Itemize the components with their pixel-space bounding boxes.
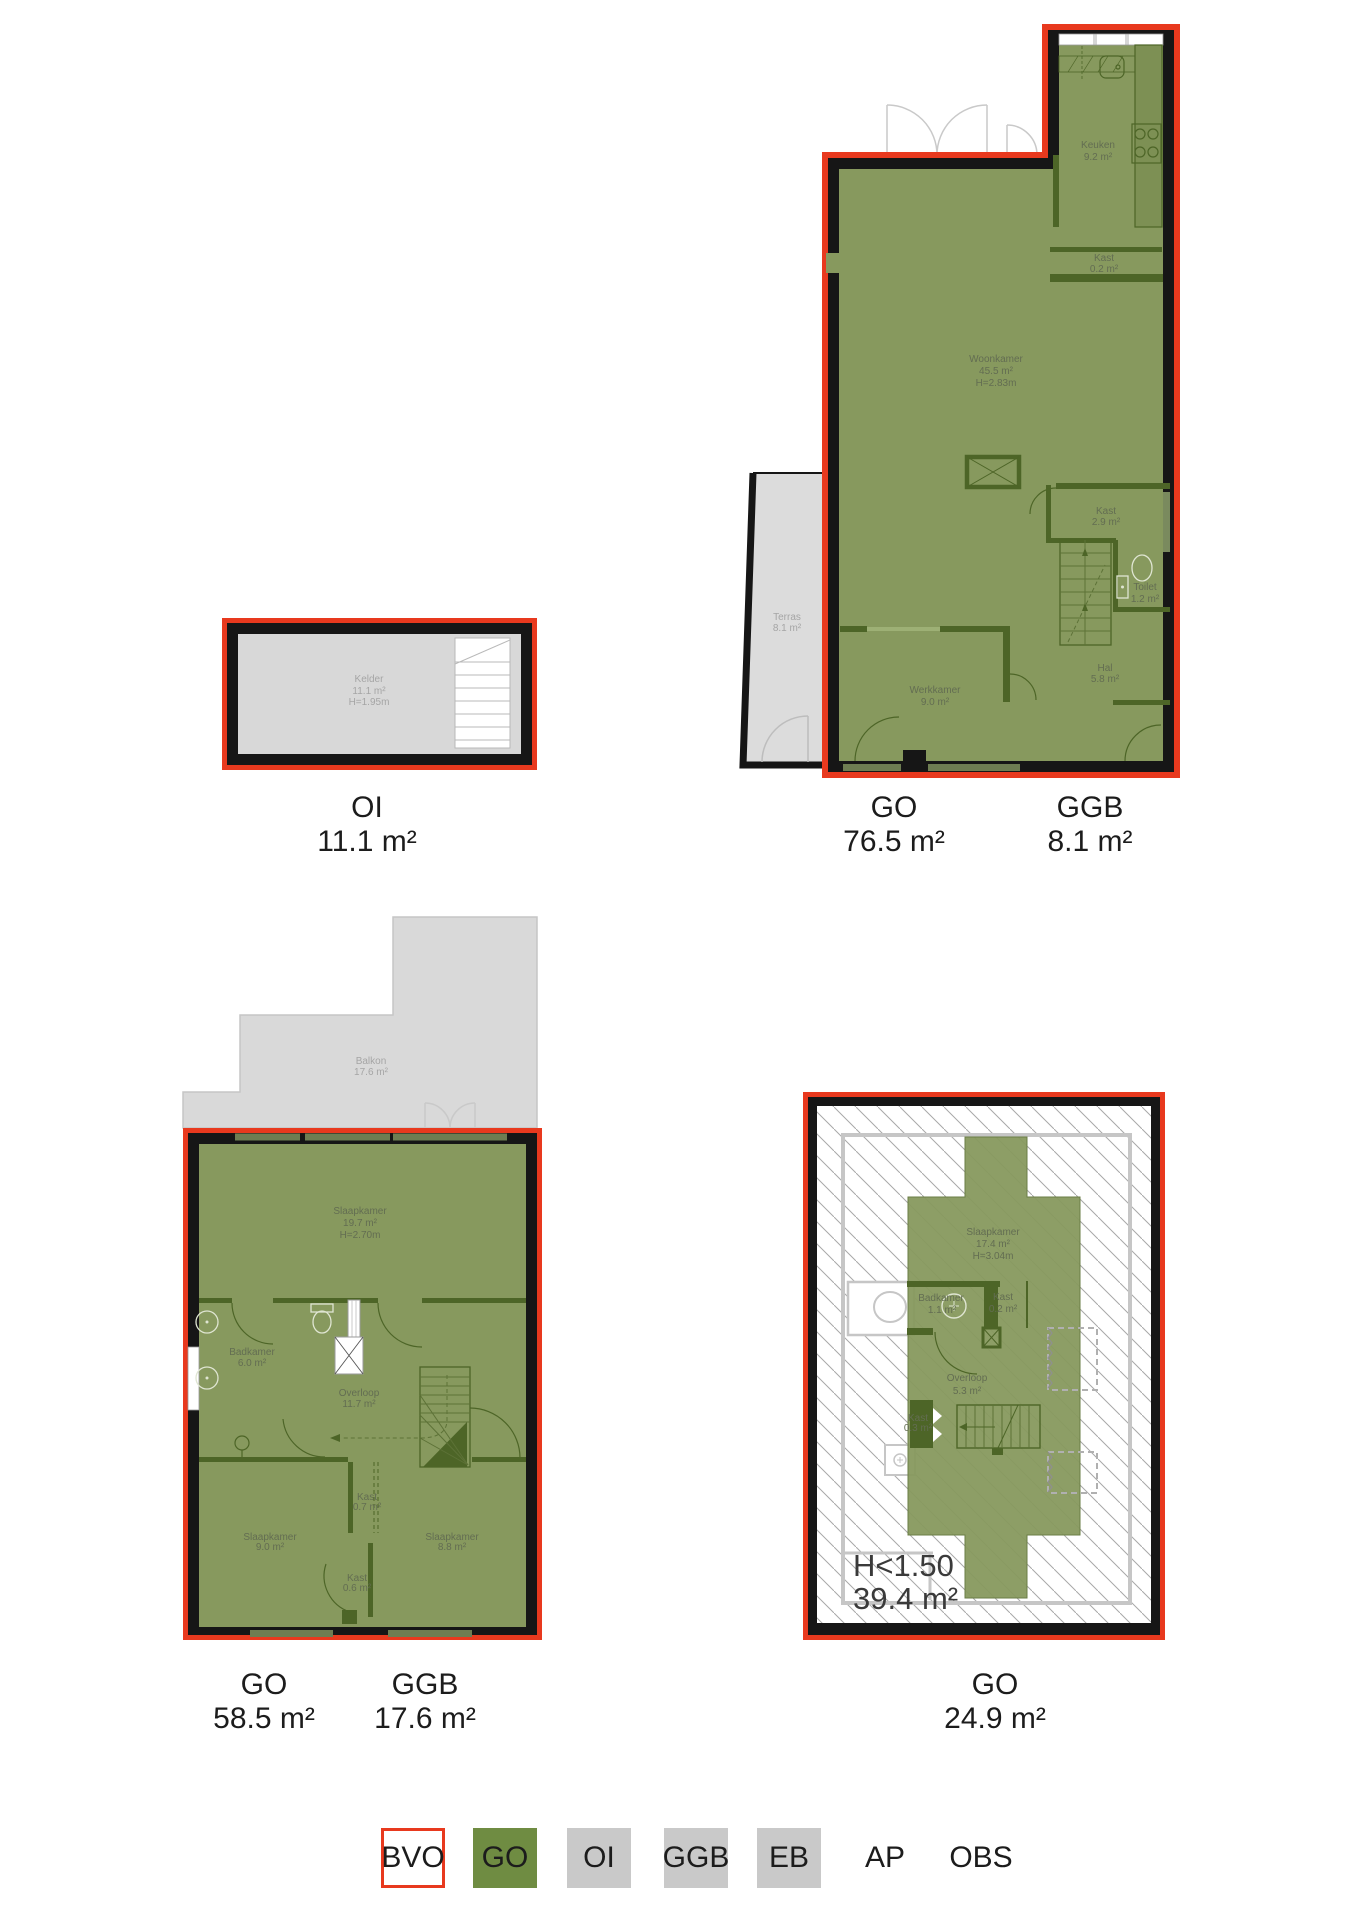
kelder-total-code: OI — [222, 791, 512, 825]
room-kast-klein-area: 0.2 m² — [989, 1304, 1018, 1315]
top-windows — [235, 1134, 507, 1141]
total-code: GO — [814, 791, 974, 825]
room-badkamer-name: Badkamer — [918, 1293, 964, 1304]
balkon-area: Balkon 17.6 m² — [183, 917, 537, 1128]
total-value: 24.9 m² — [915, 1702, 1075, 1736]
room-slaapkamer-rechts-area: 8.8 m² — [438, 1542, 467, 1553]
bottom-windows — [843, 764, 1020, 771]
plan-begane-grond: Terras 8.1 m² — [738, 20, 1186, 782]
room-kast-area: 2.9 m² — [1092, 517, 1121, 528]
room-kast-name: Kast — [1096, 506, 1116, 517]
room-kelder-name: Kelder — [355, 674, 385, 685]
legend-item-obs: OBS — [941, 1828, 1021, 1888]
room-slaapkamer-links-area: 9.0 m² — [256, 1542, 285, 1553]
room-kast-boven-area: 0.7 m² — [353, 1502, 382, 1513]
total-code: GGB — [1010, 791, 1170, 825]
legend-item-eb: EB — [757, 1828, 821, 1888]
legend-item-oi: OI — [567, 1828, 631, 1888]
entrance-door-arcs — [887, 105, 1037, 155]
total-value: 76.5 m² — [814, 825, 974, 859]
verdieping-total-go: GO 58.5 m² — [184, 1668, 344, 1736]
keuken-wall — [1053, 155, 1059, 227]
floorplan-report-page: Kelder 11.1 m² H=1.95m OI 11.1 m² Terras… — [0, 0, 1358, 1920]
total-code: GO — [184, 1668, 344, 1702]
room-balkon-area: 17.6 m² — [354, 1067, 389, 1078]
legend-item-ggb: GGB — [664, 1828, 728, 1888]
room-woonkamer-height: H=2.83m — [976, 378, 1017, 389]
room-badkamer-area: 6.0 m² — [238, 1358, 267, 1369]
room-overloop-area: 5.3 m² — [953, 1386, 982, 1397]
room-slaapkamer-area: 17.4 m² — [976, 1239, 1011, 1250]
total-value: 8.1 m² — [1010, 825, 1170, 859]
keuken-window — [1059, 34, 1163, 45]
room-badkamer-area: 1.1 m² — [928, 1305, 957, 1316]
room-werkkamer-name: Werkkamer — [910, 685, 962, 696]
room-slaapkamer-groot-name: Slaapkamer — [333, 1206, 387, 1217]
total-value: 58.5 m² — [184, 1702, 344, 1736]
room-toilet-area: 1.2 m² — [1131, 594, 1160, 605]
room-keuken-area: 9.2 m² — [1084, 152, 1113, 163]
kast-keuken-wall-top — [1050, 247, 1162, 252]
bath-box — [848, 1282, 914, 1335]
room-badkamer-name: Badkamer — [229, 1347, 275, 1358]
zolder-total-go: GO 24.9 m² — [915, 1668, 1075, 1736]
room-kast-area: 0.3 m² — [904, 1423, 933, 1434]
kelder-total-label: OI 11.1 m² — [222, 791, 512, 859]
left-window — [188, 1347, 199, 1410]
verdieping-total-ggb: GGB 17.6 m² — [345, 1668, 505, 1736]
begane-grond-total-go: GO 76.5 m² — [814, 791, 974, 859]
room-overloop-area: 11.7 m² — [342, 1399, 376, 1410]
room-hal-name: Hal — [1097, 663, 1112, 674]
kelder-total-value: 11.1 m² — [222, 825, 512, 859]
room-overloop-name: Overloop — [339, 1388, 380, 1399]
height-note-line1: H<1.50 — [853, 1548, 954, 1583]
plan-kelder: Kelder 11.1 m² H=1.95m — [222, 618, 537, 770]
terras-area: Terras 8.1 m² — [743, 473, 825, 765]
room-terras-area: 8.1 m² — [773, 623, 802, 634]
total-value: 17.6 m² — [345, 1702, 505, 1736]
room-toilet-name: Toilet — [1133, 582, 1157, 593]
room-overloop-name: Overloop — [947, 1373, 988, 1384]
room-kast-onder-area: 0.6 m² — [343, 1583, 372, 1594]
room-werkkamer-area: 9.0 m² — [921, 697, 950, 708]
room-woonkamer-area: 45.5 m² — [979, 366, 1014, 377]
room-slaapkamer-height: H=3.04m — [973, 1251, 1014, 1262]
total-code: GO — [915, 1668, 1075, 1702]
plan-eerste-verdieping: Balkon 17.6 m² Slaapkamer 19.7 m² H=2.70… — [150, 890, 570, 1652]
room-kelder-area: 11.1 m² — [352, 686, 386, 697]
room-kast-klein-name: Kast — [993, 1292, 1013, 1303]
room-kast-keuken-area: 0.2 m² — [1090, 264, 1119, 275]
room-hal-area: 5.8 m² — [1091, 674, 1120, 685]
room-slaapkamer-groot-area: 19.7 m² — [343, 1218, 378, 1229]
plan-zolder: Slaapkamer 17.4 m² H=3.04m Badkamer 1.1 … — [790, 1085, 1180, 1655]
legend-item-ap: AP — [850, 1828, 920, 1888]
bottom-pillar — [903, 750, 926, 764]
legend-item-go: GO — [473, 1828, 537, 1888]
zolder-go-area — [908, 1137, 1080, 1598]
left-wall-niche — [826, 253, 839, 273]
height-note-line2: 39.4 m² — [853, 1581, 958, 1616]
total-code: GGB — [345, 1668, 505, 1702]
room-keuken-name: Keuken — [1081, 140, 1115, 151]
room-kelder-height: H=1.95m — [349, 697, 390, 708]
room-slaapkamer-name: Slaapkamer — [966, 1227, 1020, 1238]
right-wall-window — [1163, 492, 1170, 552]
room-slaapkamer-groot-height: H=2.70m — [340, 1230, 381, 1241]
legend-item-bvo: BVO — [381, 1828, 445, 1888]
room-woonkamer-name: Woonkamer — [969, 354, 1023, 365]
room-terras-name: Terras — [773, 612, 801, 623]
room-kast-keuken-name: Kast — [1094, 253, 1114, 264]
kelder-staircase — [455, 638, 510, 748]
begane-grond-total-ggb: GGB 8.1 m² — [1010, 791, 1170, 859]
room-balkon-name: Balkon — [356, 1056, 387, 1067]
kast-keuken-wall-bottom — [1050, 274, 1163, 282]
